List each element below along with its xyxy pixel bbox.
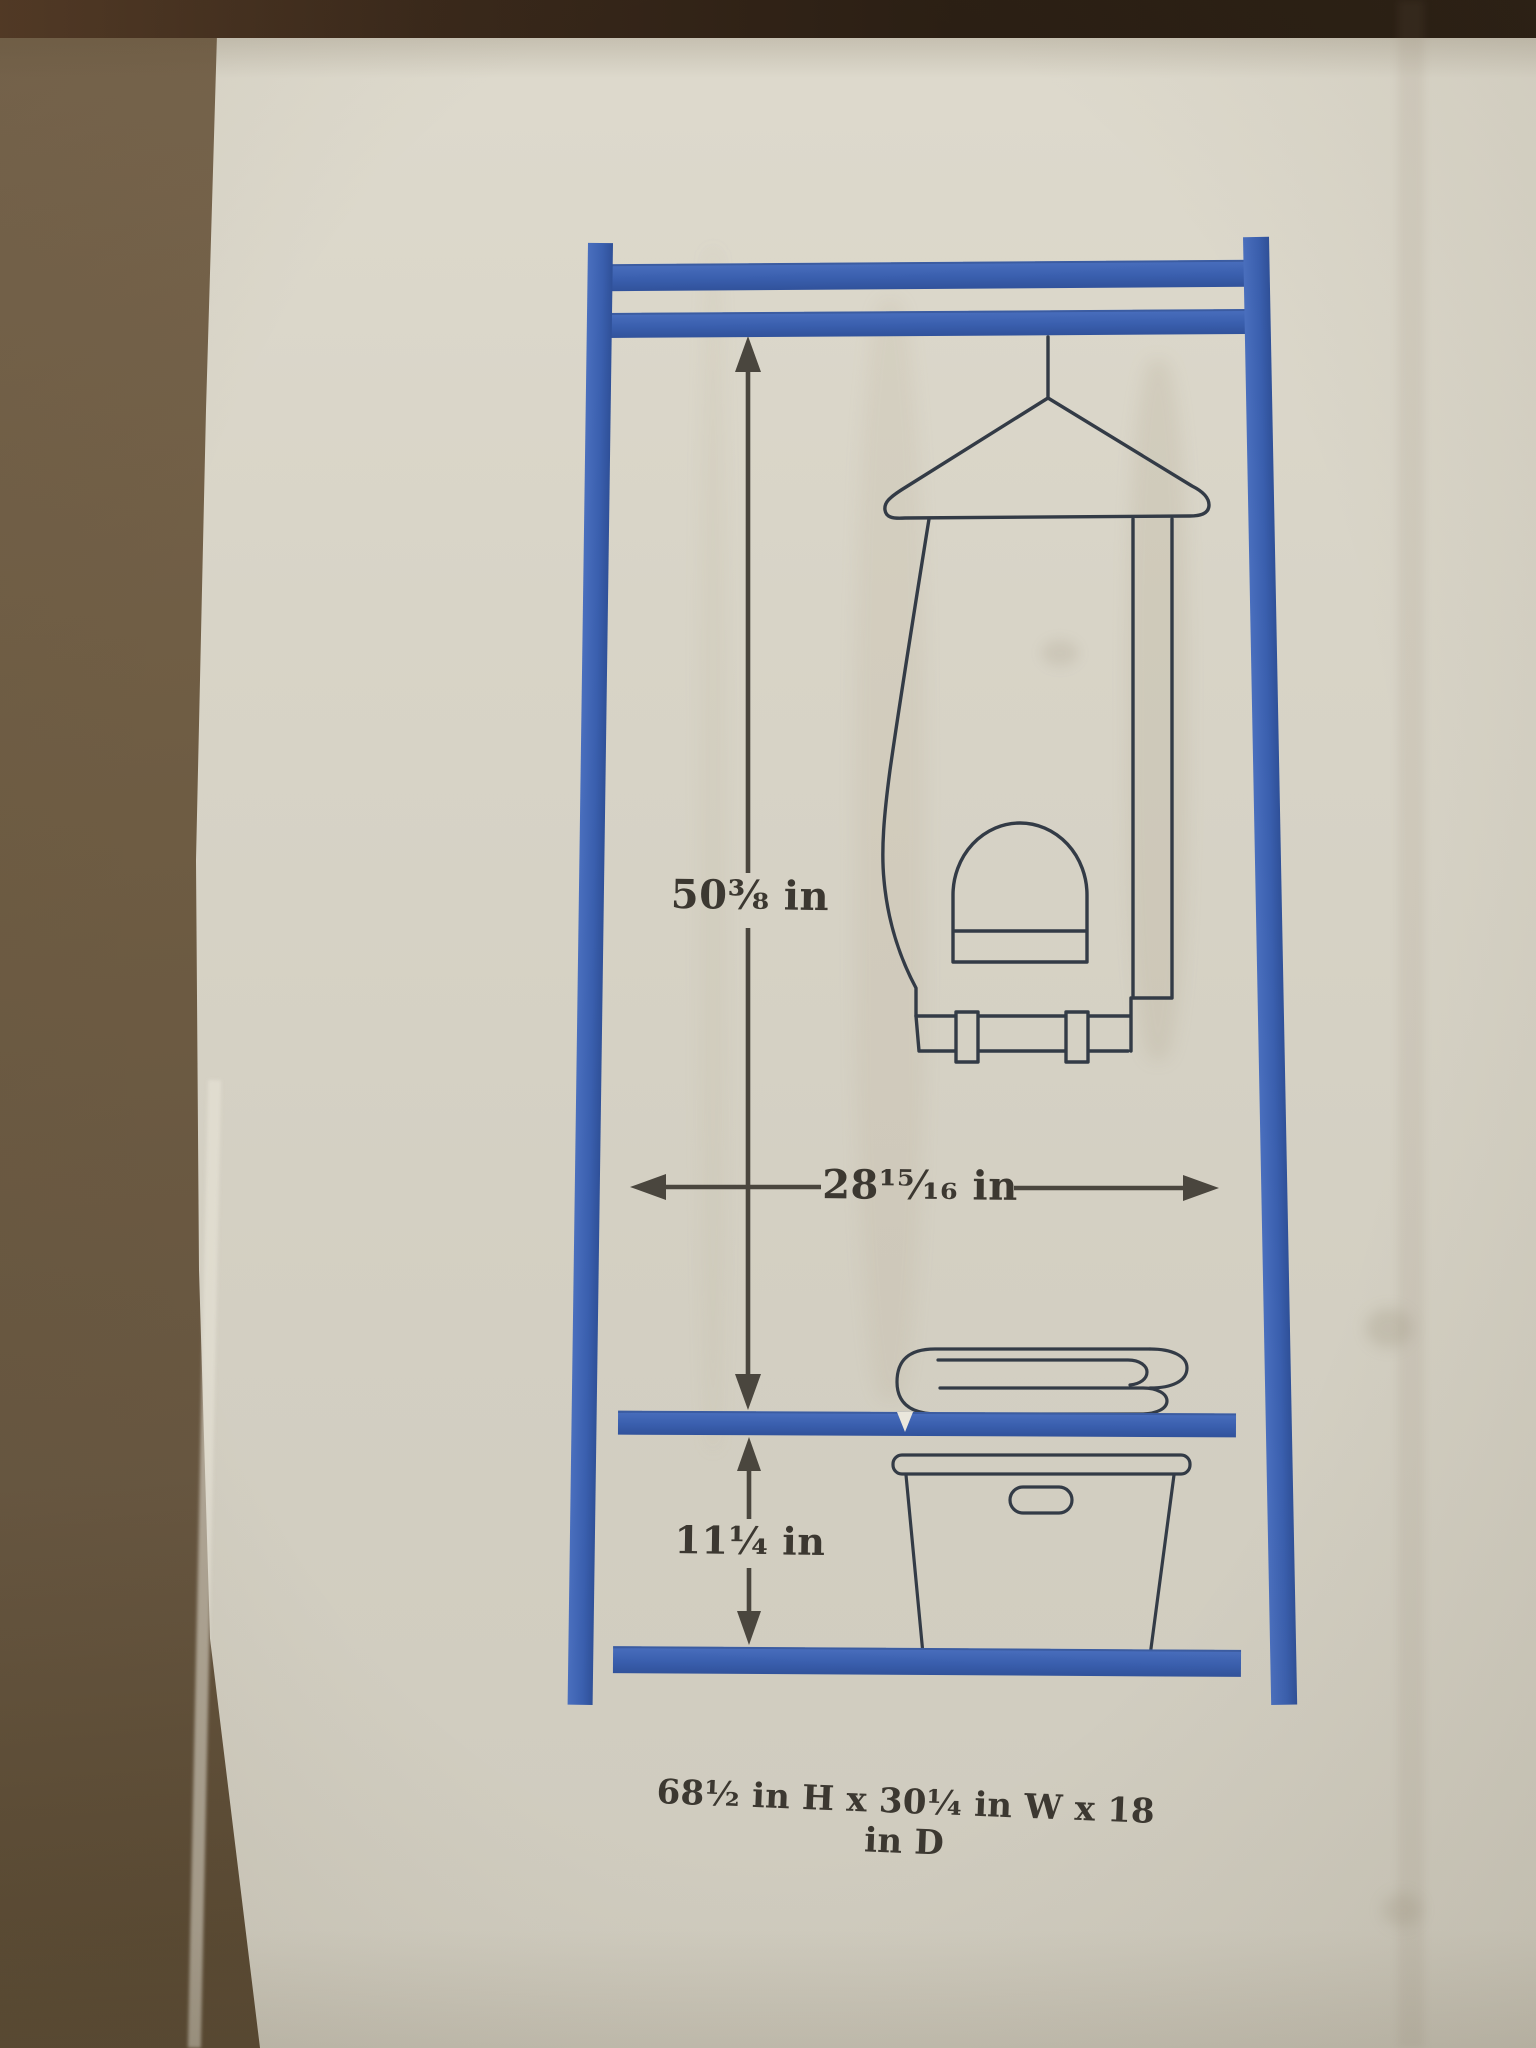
vignette <box>0 0 1536 2048</box>
box-photo: 50⅜ in 28¹⁵⁄₁₆ in 11¼ in 68½ in H x 30¼ … <box>0 0 1536 2048</box>
